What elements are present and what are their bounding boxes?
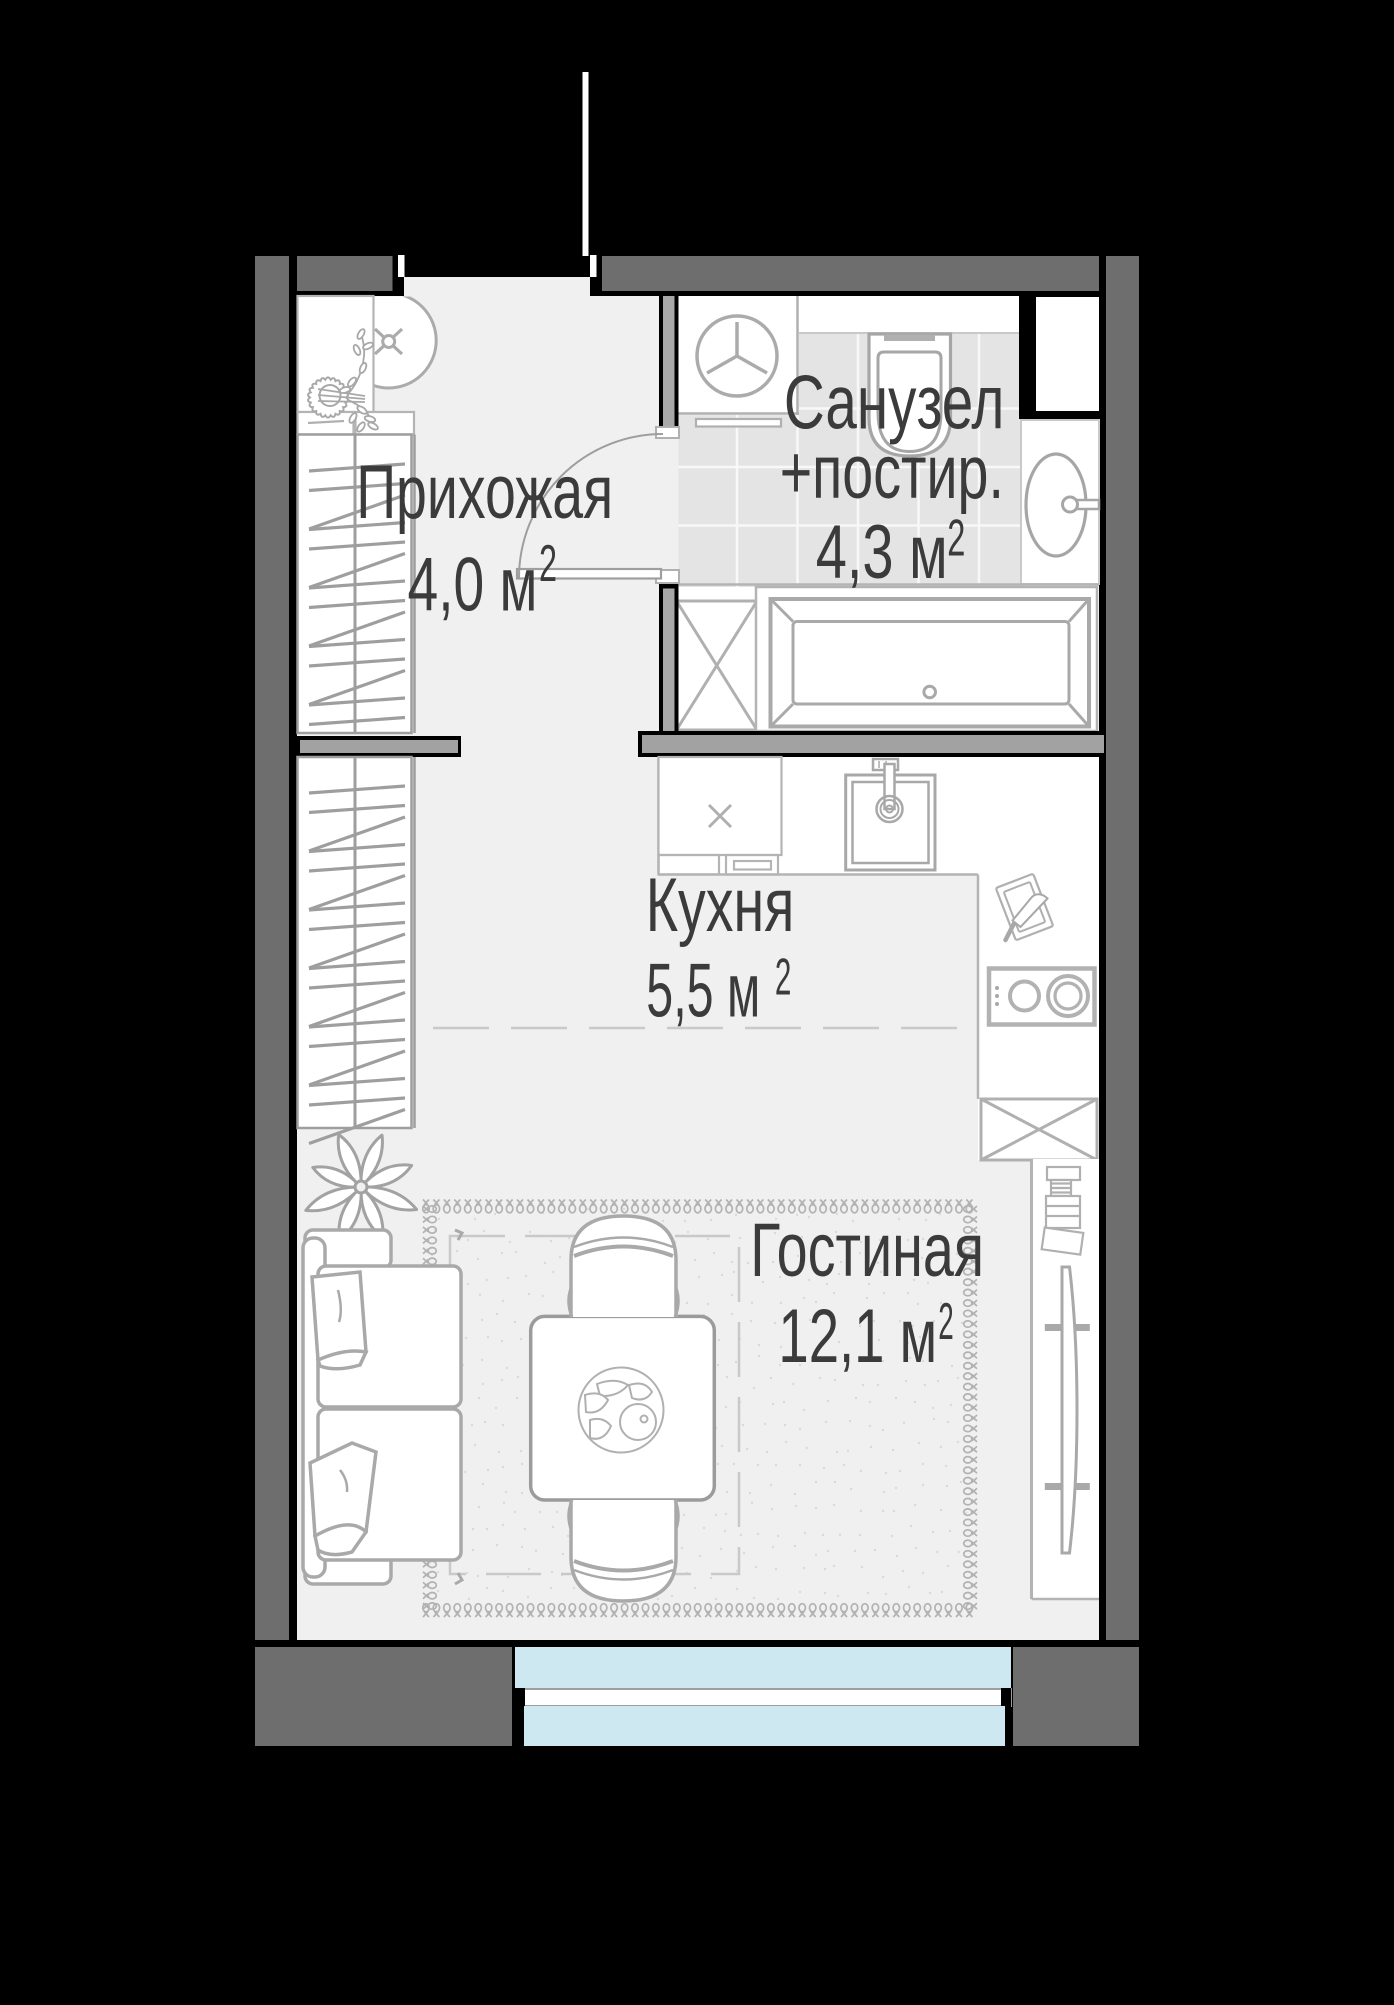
svg-text:12,1 м: 12,1 м	[778, 1294, 937, 1379]
svg-text:4,3 м: 4,3 м	[816, 510, 948, 595]
svg-text:2: 2	[938, 1293, 954, 1351]
svg-text:2: 2	[539, 535, 557, 593]
svg-text:2: 2	[775, 949, 792, 1007]
svg-text:Прихожая: Прихожая	[356, 450, 613, 535]
svg-text:4,0 м: 4,0 м	[408, 543, 538, 628]
svg-text:Кухня: Кухня	[646, 863, 795, 948]
svg-text:+постир.: +постир.	[780, 430, 1004, 515]
svg-text:2: 2	[947, 510, 965, 568]
svg-text:Гостиная: Гостиная	[750, 1208, 984, 1293]
svg-text:5,5 м: 5,5 м	[646, 948, 760, 1033]
